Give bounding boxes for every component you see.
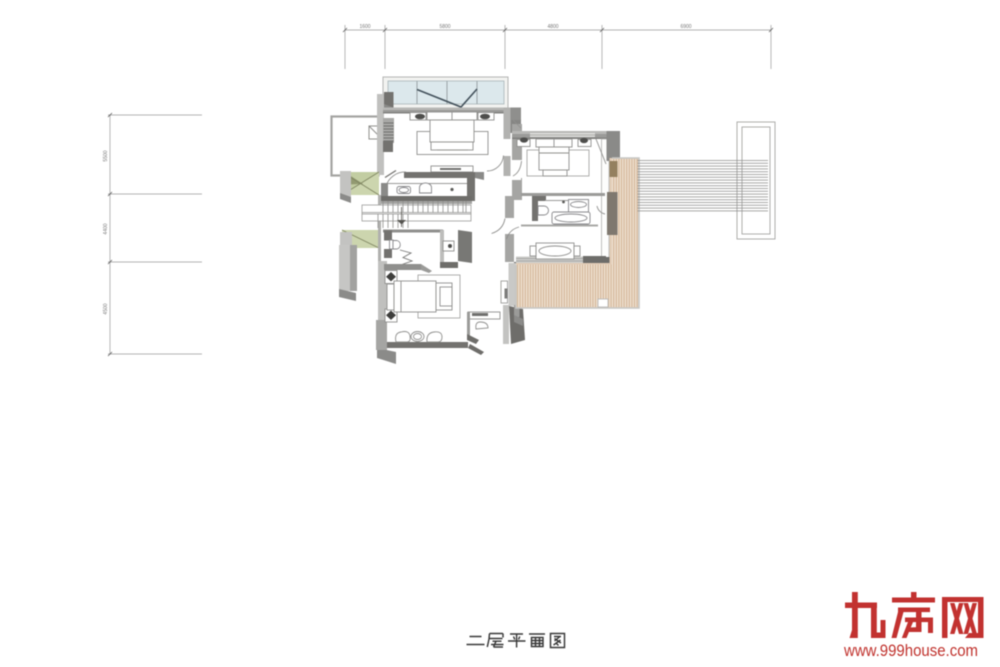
svg-text:4800: 4800 xyxy=(547,24,558,30)
svg-text:4500: 4500 xyxy=(103,303,109,314)
svg-text:5800: 5800 xyxy=(439,24,450,30)
svg-text:www.999house.com: www.999house.com xyxy=(843,641,978,660)
svg-text:1600: 1600 xyxy=(359,24,370,30)
svg-text:5500: 5500 xyxy=(103,150,109,161)
svg-text:6900: 6900 xyxy=(680,24,691,30)
svg-text:4400: 4400 xyxy=(103,223,109,234)
